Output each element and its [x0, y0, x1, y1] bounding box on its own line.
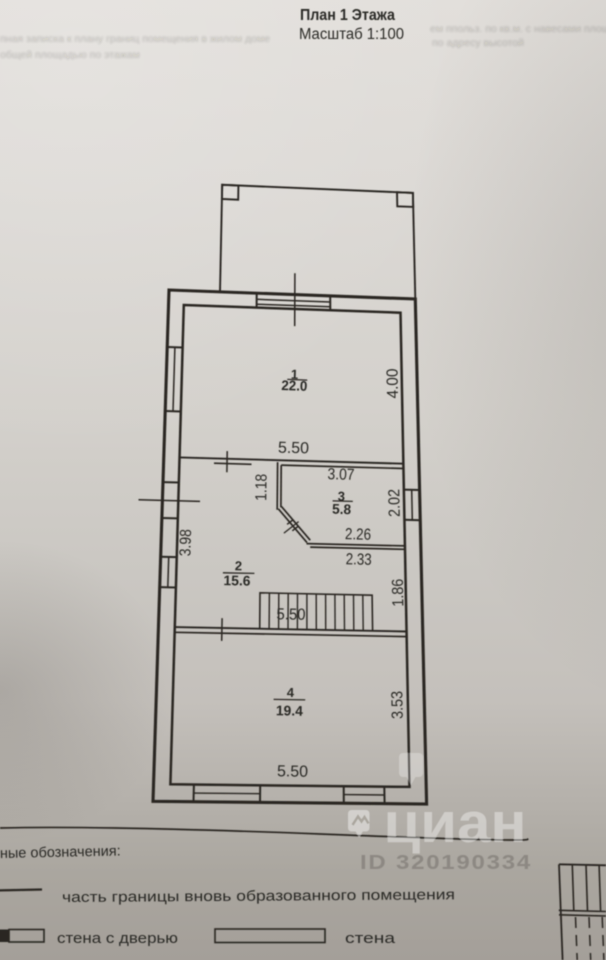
- svg-text:3.98: 3.98: [177, 529, 195, 557]
- svg-text:2.02: 2.02: [386, 489, 403, 517]
- svg-text:19.4: 19.4: [276, 702, 303, 718]
- svg-text:циан: циан: [384, 791, 527, 855]
- svg-text:1.86: 1.86: [390, 578, 407, 606]
- svg-text:Масштаб 1:100: Масштаб 1:100: [299, 26, 404, 43]
- svg-text:22.0: 22.0: [281, 377, 308, 394]
- svg-text:4.00: 4.00: [384, 368, 402, 398]
- svg-text:часть границы вновь образованн: часть границы вновь образованного помеще…: [62, 887, 455, 906]
- svg-text:2.26: 2.26: [345, 526, 371, 544]
- svg-text:1.18: 1.18: [253, 474, 270, 501]
- svg-text:5.50: 5.50: [278, 440, 310, 458]
- svg-text:3.53: 3.53: [389, 691, 406, 719]
- svg-text:2.33: 2.33: [346, 551, 372, 569]
- svg-text:стена с дверью: стена с дверью: [57, 931, 178, 947]
- svg-text:по адресу высотой: по адресу высотой: [432, 37, 524, 49]
- svg-text:ID 320190334: ID 320190334: [360, 851, 532, 874]
- svg-text:ем ппольз. по кв.м. с навесами: ем ппольз. по кв.м. с навесами площадь: [430, 23, 606, 35]
- svg-text:2: 2: [235, 558, 243, 573]
- svg-text:общей площадью по этажам: общей площадью по этажам: [0, 49, 140, 61]
- svg-text:пная записка к плану границ по: пная записка к плану границ помещения в …: [0, 33, 270, 45]
- svg-text:3.07: 3.07: [327, 466, 355, 484]
- svg-text:5.50: 5.50: [277, 763, 308, 780]
- svg-text:План 1 Этажа: План 1 Этажа: [300, 7, 395, 24]
- svg-text:5.8: 5.8: [332, 501, 352, 517]
- svg-text:5.50: 5.50: [276, 606, 305, 624]
- svg-text:стена: стена: [345, 931, 396, 947]
- svg-text:15.6: 15.6: [223, 572, 251, 589]
- svg-text:ные обозначения:: ные обозначения:: [0, 843, 121, 862]
- svg-text:4: 4: [287, 685, 295, 700]
